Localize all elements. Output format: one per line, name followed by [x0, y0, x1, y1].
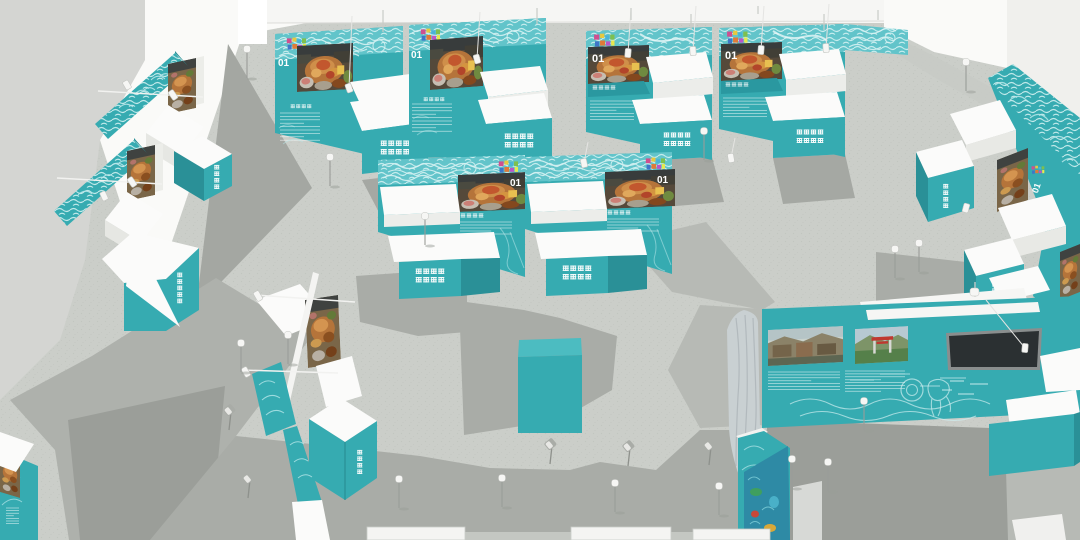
svg-text:01: 01 [510, 178, 522, 189]
svg-text:01: 01 [725, 50, 737, 62]
svg-text:01: 01 [278, 58, 290, 69]
svg-text:01: 01 [592, 53, 604, 65]
svg-text:01: 01 [411, 50, 423, 61]
svg-text:01: 01 [657, 175, 669, 186]
